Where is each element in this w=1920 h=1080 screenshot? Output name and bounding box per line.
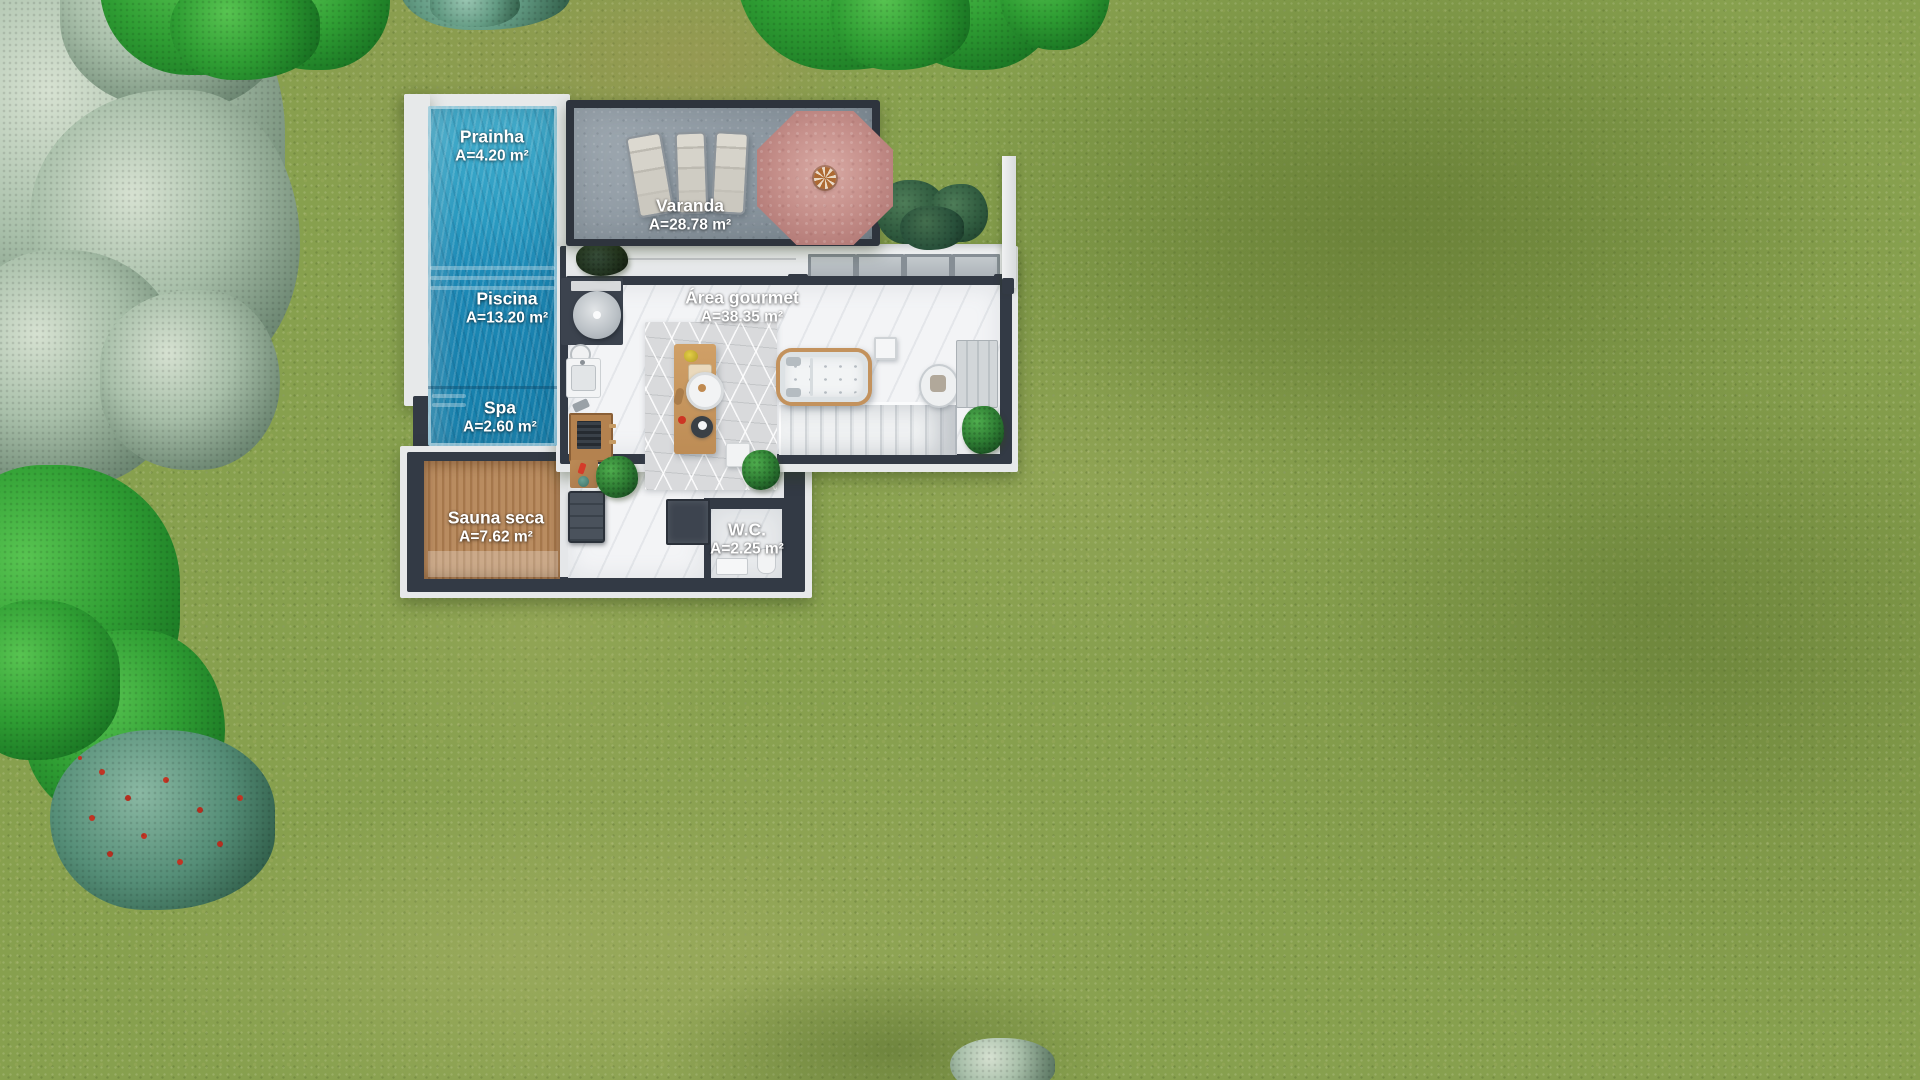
spa-divider (428, 386, 557, 389)
serving-platter (686, 372, 724, 410)
window-sill-plant (576, 242, 628, 276)
hot-tub-seat-divider (810, 358, 813, 396)
potted-plant (742, 450, 780, 490)
pool-step (430, 266, 555, 270)
sauna-bench (428, 551, 558, 577)
shower-box (666, 499, 710, 545)
pool-step (430, 276, 555, 280)
room-area: A=28.78 m² (649, 216, 731, 233)
sink-basin (571, 365, 596, 391)
coffee-cup (698, 421, 707, 430)
red-pepper (678, 416, 686, 424)
room-label-area-gourmet: Área gourmet A=38.35 m² (685, 289, 799, 326)
room-label-wc: W.C. A=2.25 m² (710, 521, 784, 558)
teal-bowl (578, 476, 589, 487)
boundary-wall-cap (1002, 278, 1014, 294)
room-area: A=4.20 m² (455, 147, 529, 164)
hot-tub (776, 348, 872, 406)
room-name: W.C. (710, 521, 784, 541)
window-sill-line (628, 258, 796, 260)
room-label-spa: Spa A=2.60 m² (463, 399, 537, 436)
sink-faucet (580, 360, 585, 365)
room-label-varanda: Varanda A=28.78 m² (649, 197, 731, 234)
sauna-door-threshold (560, 463, 568, 577)
room-label-sauna-seca: Sauna seca A=7.62 m² (448, 509, 544, 546)
potted-plant (596, 456, 638, 498)
hot-tub-headrest (786, 388, 801, 397)
room-name: Spa (463, 399, 537, 419)
spa-step (432, 403, 466, 407)
room-name: Varanda (649, 197, 731, 217)
side-table (874, 337, 897, 360)
grill-handle (609, 440, 616, 444)
parasol-hub (814, 167, 836, 189)
grass-mottle-patch (1120, 130, 1640, 450)
snack-bowl (684, 350, 698, 362)
boundary-wall (1002, 156, 1016, 288)
room-area: A=7.62 m² (448, 528, 544, 545)
stairs (779, 402, 957, 455)
room-label-piscina: Piscina A=13.20 m² (466, 290, 548, 327)
room-name: Sauna seca (448, 509, 544, 529)
wc-vanity (716, 558, 748, 575)
hot-tub-headrest (786, 357, 801, 366)
room-area: A=38.35 m² (685, 308, 799, 325)
potted-plant (962, 406, 1004, 454)
dome-grill-knob (593, 311, 601, 319)
room-name: Piscina (466, 290, 548, 310)
grill-grate (577, 421, 601, 449)
counter-inset (571, 281, 621, 291)
holly-berries (78, 756, 82, 760)
pool-surround-left (404, 94, 430, 406)
room-name: Área gourmet (685, 289, 799, 309)
spa-step (432, 394, 466, 398)
grill-handle (609, 424, 616, 428)
towel-cabinet (956, 340, 998, 408)
hanging-chair-cushion (930, 375, 946, 392)
shrub-silver-bottom (950, 1038, 1055, 1080)
room-area: A=2.25 m² (710, 540, 784, 557)
room-area: A=2.60 m² (463, 418, 537, 435)
site-plan-render: Prainha A=4.20 m² Varanda A=28.78 m² Pis… (0, 0, 1920, 1080)
room-area: A=13.20 m² (466, 309, 548, 326)
room-name: Prainha (455, 128, 529, 148)
room-label-prainha: Prainha A=4.20 m² (455, 128, 529, 165)
service-trolley (568, 491, 605, 543)
platter-center (698, 384, 706, 392)
